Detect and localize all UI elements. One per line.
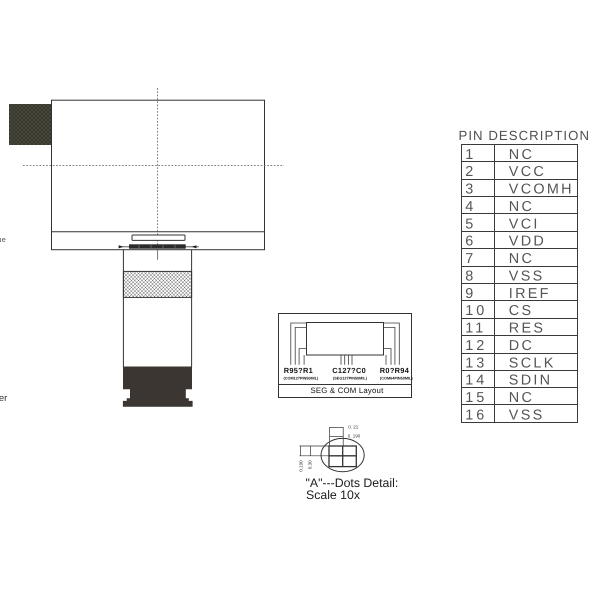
svg-text:RES: RES <box>509 321 546 337</box>
svg-text:VSS: VSS <box>509 407 545 423</box>
svg-text:NC: NC <box>509 251 534 267</box>
svg-text:VCOMH: VCOMH <box>509 182 574 198</box>
svg-text:NC: NC <box>509 199 534 215</box>
svg-text:VSS: VSS <box>509 268 545 284</box>
svg-text:C127?C0: C127?C0 <box>332 366 366 375</box>
svg-text:6: 6 <box>465 234 476 250</box>
svg-text:SDIN: SDIN <box>509 373 553 389</box>
svg-text:13: 13 <box>465 355 487 371</box>
svg-text:SEG & COM Layout: SEG & COM Layout <box>311 386 385 395</box>
svg-text:10: 10 <box>465 303 487 319</box>
svg-text:2: 2 <box>465 164 476 180</box>
svg-text:VDD: VDD <box>509 234 546 250</box>
svg-text:(SEG127PIN50MIL): (SEG127PIN50MIL) <box>333 376 368 380</box>
svg-text:16: 16 <box>465 407 487 423</box>
svg-text:11: 11 <box>465 321 486 337</box>
svg-text:14: 14 <box>465 373 487 389</box>
svg-text:1: 1 <box>465 147 476 163</box>
svg-text:SCLK: SCLK <box>509 355 556 371</box>
svg-text:NC: NC <box>509 147 534 163</box>
svg-text:12: 12 <box>465 338 487 354</box>
svg-text:0.30: 0.30 <box>308 460 313 469</box>
svg-text:R95?R1: R95?R1 <box>284 366 313 375</box>
svg-text:9: 9 <box>465 286 476 302</box>
svg-text:0. 190: 0. 190 <box>348 434 361 439</box>
svg-text:CS: CS <box>509 303 534 319</box>
svg-text:VCI: VCI <box>509 216 540 232</box>
svg-text:15: 15 <box>465 390 487 406</box>
svg-text:8: 8 <box>465 268 476 284</box>
svg-text:DC: DC <box>509 338 534 354</box>
svg-text:0. 21: 0. 21 <box>348 425 359 430</box>
svg-text:PIN DESCRIPTION: PIN DESCRIPTION <box>459 128 591 143</box>
svg-text:0.190: 0.190 <box>299 460 304 472</box>
svg-text:5: 5 <box>465 216 476 232</box>
svg-text:er: er <box>0 393 7 404</box>
svg-text:ue: ue <box>0 235 6 244</box>
svg-text:7: 7 <box>465 251 476 267</box>
svg-text:IREF: IREF <box>509 286 551 302</box>
svg-text:Scale 10x: Scale 10x <box>306 488 361 502</box>
svg-text:3: 3 <box>465 182 476 198</box>
svg-text:(COM64PIN50MIL): (COM64PIN50MIL) <box>380 376 413 380</box>
svg-text:R0?R94: R0?R94 <box>380 366 410 375</box>
svg-text:4: 4 <box>465 199 476 215</box>
svg-text:VCC: VCC <box>509 164 546 180</box>
svg-text:(COM127PIN50MIL): (COM127PIN50MIL) <box>284 376 320 380</box>
svg-text:NC: NC <box>509 390 534 406</box>
